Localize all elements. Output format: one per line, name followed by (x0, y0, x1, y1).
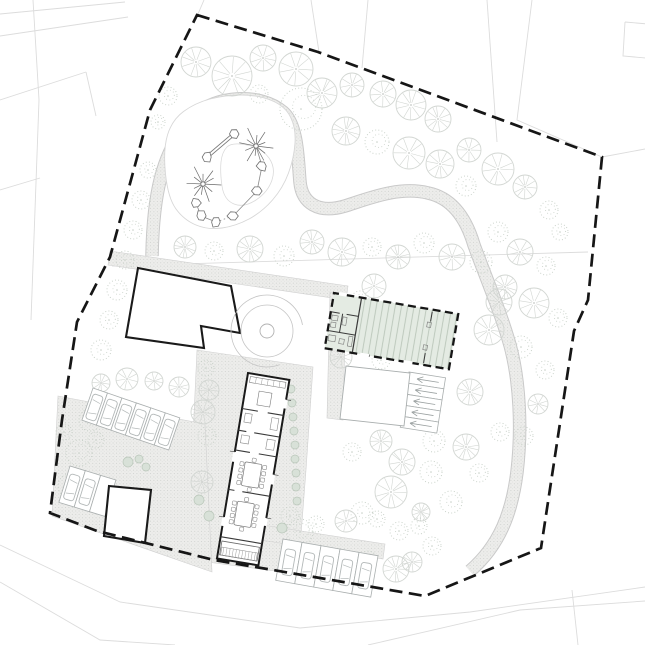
playground-lawn (165, 95, 296, 229)
tree-outline (513, 175, 537, 199)
context-line (572, 590, 578, 645)
tree-stippled (107, 280, 127, 300)
tree-stippled (274, 246, 294, 266)
context-line (362, 0, 368, 68)
tree-outline (519, 288, 549, 318)
tree-outline (412, 503, 430, 521)
context-line (198, 0, 204, 14)
tree-outline (328, 238, 356, 266)
tree-outline (174, 236, 196, 258)
tree-outline (439, 244, 465, 270)
bush (289, 413, 297, 421)
tree-outline (181, 47, 211, 77)
tree-stippled (423, 537, 441, 555)
tree-outline (375, 476, 407, 508)
context-line (623, 22, 645, 58)
inner-ring (260, 324, 274, 338)
tree-outline (145, 372, 163, 390)
bush (277, 523, 287, 533)
tree-outline (307, 78, 337, 108)
bush (290, 427, 298, 435)
tree-outline (386, 245, 410, 269)
bush (291, 455, 299, 463)
context-line (311, 0, 319, 52)
bush (292, 469, 300, 477)
bush (291, 441, 299, 449)
tree-stippled (537, 257, 555, 275)
dining-table (234, 501, 255, 527)
context-line (0, 17, 128, 36)
tree-outline (425, 106, 451, 132)
tree-outline (250, 45, 276, 71)
tree-outline (528, 394, 548, 414)
green-building-roof-hatch (352, 298, 458, 370)
bush (292, 483, 300, 491)
tree-stippled (132, 191, 150, 209)
tree-outline (482, 153, 514, 185)
tree-outline (212, 56, 252, 96)
context-line (487, 0, 497, 142)
tree-outline (507, 239, 533, 265)
bush (194, 495, 204, 505)
bush (135, 455, 143, 463)
circular-feature (231, 295, 302, 367)
context-line (368, 601, 645, 645)
playground-area (165, 95, 296, 229)
barn-building (340, 366, 410, 426)
tree-stippled (351, 502, 373, 524)
tree-outline (402, 552, 422, 572)
tree-outline (332, 117, 360, 145)
tree-stippled (151, 115, 165, 129)
context-line (86, 72, 96, 116)
tree-outline (457, 379, 483, 405)
context-line (0, 72, 86, 100)
tree-outline (169, 377, 189, 397)
tree-outline (340, 73, 364, 97)
tree-outline (396, 90, 426, 120)
context-line (0, 178, 40, 190)
site-plan-canvas (0, 0, 645, 645)
bush (123, 457, 133, 467)
tree-stippled (100, 311, 118, 329)
bush (142, 463, 150, 471)
tree-outline (457, 138, 481, 162)
dining-table (241, 462, 262, 488)
tree-stippled (491, 423, 509, 441)
context-line (0, 2, 125, 14)
tree-stippled (140, 162, 156, 178)
tree-stippled (420, 461, 442, 483)
context-line (602, 149, 645, 157)
tree-stippled (390, 522, 408, 540)
tree-stippled (423, 430, 445, 452)
tree-stippled (343, 443, 361, 461)
tree-stippled (205, 242, 223, 260)
tree-stippled (369, 511, 385, 527)
tree-outline (116, 368, 138, 390)
tree-stippled (536, 361, 554, 379)
bush (204, 511, 214, 521)
tree-outline (300, 230, 324, 254)
tree-stippled (91, 340, 111, 360)
tree-outline (389, 449, 415, 475)
tree-stippled (549, 309, 567, 327)
bush (293, 497, 301, 505)
tree-outline (279, 52, 313, 86)
tree-stippled (159, 87, 177, 105)
play-boulder (212, 218, 221, 228)
tree-outline (335, 510, 357, 532)
tree-outline (393, 137, 425, 169)
tree-stippled (440, 491, 462, 513)
tree-stippled (124, 221, 142, 239)
context-line (517, 0, 602, 157)
tree-stippled (488, 222, 508, 242)
tree-stippled (414, 233, 434, 253)
middle-ring (241, 305, 293, 357)
tree-stippled (540, 201, 558, 219)
tree-stippled (456, 176, 476, 196)
play-boulder (197, 211, 206, 220)
tree-stippled (308, 516, 324, 532)
outer-arc (231, 295, 302, 367)
tree-outline (453, 434, 479, 460)
tree-outline (370, 81, 396, 107)
tree-outline (362, 274, 386, 298)
tree-stippled (363, 238, 381, 256)
tree-outline (426, 150, 454, 178)
tree-stippled (470, 464, 488, 482)
site-plan (0, 0, 645, 645)
context-line (0, 582, 175, 645)
context-line (31, 0, 39, 320)
tree-outline (237, 236, 263, 262)
tree-outline (370, 430, 392, 452)
tree-stippled (365, 130, 389, 154)
tree-stippled (552, 224, 568, 240)
